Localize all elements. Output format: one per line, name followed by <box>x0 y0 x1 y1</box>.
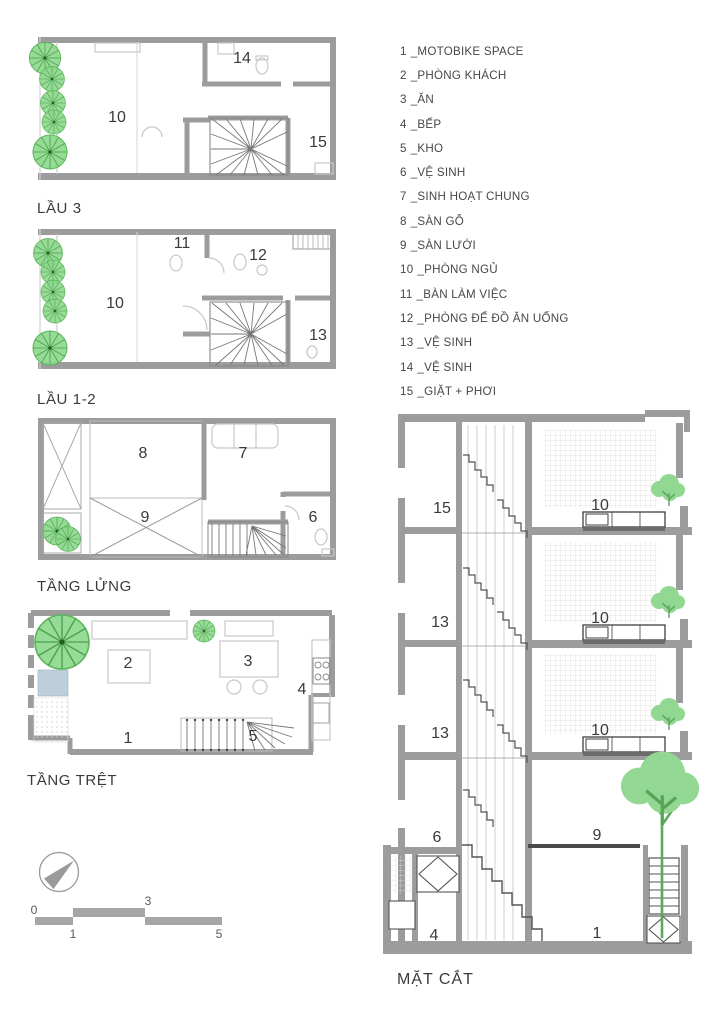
legend-separator: _ <box>417 385 424 398</box>
legend-item-number: 8 <box>400 215 407 228</box>
legend-separator: _ <box>417 361 424 374</box>
scale-bar: 0 1 3 5 <box>31 894 223 941</box>
legend-item-label: VỆ SINH <box>417 166 465 179</box>
legend-separator: _ <box>411 239 418 252</box>
ladder <box>649 858 679 914</box>
legend-item-label: KHO <box>417 142 443 155</box>
legend-item-label: VỆ SINH <box>424 336 472 349</box>
legend-item-label: BẾP <box>417 118 441 131</box>
legend-item: 12_PHÒNG ĐỂ ĐỒ ĂN UỐNG <box>400 306 569 330</box>
room-label: 11 <box>174 235 191 252</box>
legend-item: 7_SINH HOẠT CHUNG <box>400 185 569 209</box>
legend-item-label: SÀN LƯỚI <box>417 239 476 252</box>
plan-title-lau12: LẦU 1-2 <box>37 391 96 408</box>
legend-separator: _ <box>411 215 418 228</box>
legend-item-number: 9 <box>400 239 407 252</box>
tree-icon <box>42 110 66 134</box>
room-label: 4 <box>298 681 307 698</box>
room-label: 8 <box>139 445 148 462</box>
stairs <box>210 118 288 175</box>
legend-item-label: GIẶT + PHƠI <box>424 385 496 398</box>
room-label: 6 <box>433 829 442 846</box>
room-label: 10 <box>591 722 609 739</box>
legend-separator: _ <box>417 312 424 325</box>
legend-separator: _ <box>411 166 418 179</box>
legend-item: 6_VỆ SINH <box>400 160 569 184</box>
legend-item: 10_PHÒNG NGỦ <box>400 258 569 282</box>
scale-tick: 3 <box>145 894 152 908</box>
room-label: 10 <box>591 497 609 514</box>
wardrobe <box>293 233 333 249</box>
floor-plan-lau12: 10 11 12 13 <box>33 229 336 369</box>
room-legend: 1_MOTOBIKE SPACE 2_PHÒNG KHÁCH 3_ĂN 4_BẾ… <box>400 39 569 403</box>
legend-item-label: PHÒNG NGỦ <box>424 263 498 276</box>
room-label: 9 <box>141 509 150 526</box>
architectural-drawing-sheet: 10 14 15 <box>0 0 724 1024</box>
legend-item-number: 5 <box>400 142 407 155</box>
legend-separator: _ <box>411 45 418 58</box>
furniture <box>95 43 333 174</box>
legend-item-label: PHÒNG KHÁCH <box>417 69 506 82</box>
legend-item: 9_SÀN LƯỚI <box>400 233 569 257</box>
legend-item: 13_VỆ SINH <box>400 331 569 355</box>
room-label: 5 <box>249 728 258 745</box>
floor-plan-lau3: 10 14 15 <box>29 37 336 180</box>
plan-title-tang-tret: TẦNG TRỆT <box>27 772 117 789</box>
legend-item: 14_VỆ SINH <box>400 355 569 379</box>
legend-separator: _ <box>411 118 418 131</box>
trees <box>43 517 80 551</box>
room-label: 4 <box>430 927 439 944</box>
mesh-texture <box>391 430 657 894</box>
legend-item-number: 1 <box>400 45 407 58</box>
floor-plan-tang-lung: 8 9 7 6 <box>41 421 336 557</box>
legend-item-number: 12 <box>400 312 413 325</box>
legend-item: 8_SÀN GỖ <box>400 209 569 233</box>
scale-tick: 5 <box>216 927 223 941</box>
room-label: 12 <box>249 247 267 264</box>
drawing-canvas: 10 14 15 <box>0 0 724 1024</box>
legend-item-label: ĂN <box>417 93 434 106</box>
room-label: 1 <box>593 925 602 942</box>
legend-item: 11_BÀN LÀM VIỆC <box>400 282 569 306</box>
floor-plan-tang-tret: 2 3 4 1 5 <box>27 609 332 754</box>
legend-item: 5_KHO <box>400 136 569 160</box>
section-title: MẶT CẮT <box>397 971 474 989</box>
room-label: 2 <box>124 655 133 672</box>
scale-tick: 1 <box>70 927 77 941</box>
trees <box>29 42 67 169</box>
legend-item-number: 10 <box>400 263 413 276</box>
legend-item-number: 11 <box>400 288 413 301</box>
legend-item-label: MOTOBIKE SPACE <box>417 45 523 58</box>
room-label: 13 <box>309 327 327 344</box>
stairs <box>210 302 288 366</box>
legend-separator: _ <box>417 288 424 301</box>
legend-item-label: SÀN GỖ <box>417 215 464 228</box>
legend-separator: _ <box>411 69 418 82</box>
legend-item-number: 3 <box>400 93 407 106</box>
north-arrow-icon <box>40 853 79 892</box>
legend-item-label: VỆ SINH <box>424 361 472 374</box>
furniture <box>212 424 334 556</box>
legend-item-number: 4 <box>400 118 407 131</box>
room-label: 9 <box>593 827 602 844</box>
legend-item-number: 2 <box>400 69 407 82</box>
legend-item-number: 15 <box>400 385 413 398</box>
legend-item: 4_BẾP <box>400 112 569 136</box>
room-label: 13 <box>431 725 449 742</box>
legend-separator: _ <box>411 142 418 155</box>
scale-tick: 0 <box>31 903 38 917</box>
room-label: 6 <box>309 509 318 526</box>
legend-separator: _ <box>417 336 424 349</box>
legend-item-number: 14 <box>400 361 413 374</box>
tree-icon <box>35 615 89 669</box>
tree-icon <box>40 67 65 92</box>
legend-item: 1_MOTOBIKE SPACE <box>400 39 569 63</box>
water-feature <box>38 670 68 696</box>
legend-item: 15_GIẶT + PHƠI <box>400 379 569 403</box>
tree-icon <box>33 331 67 365</box>
tree-icon <box>193 620 215 642</box>
gravel-area <box>34 698 68 742</box>
room-label: 10 <box>106 295 124 312</box>
net-floor <box>90 498 202 557</box>
legend-item-label: BÀN LÀM VIỆC <box>423 288 507 301</box>
legend-item-number: 7 <box>400 190 407 203</box>
room-label: 14 <box>233 50 251 67</box>
legend-item-label: PHÒNG ĐỂ ĐỒ ĂN UỐNG <box>424 312 569 325</box>
stairs <box>181 718 294 751</box>
tree-icon <box>33 135 67 169</box>
room-label: 15 <box>309 134 327 151</box>
legend-item-number: 13 <box>400 336 413 349</box>
room-label: 7 <box>239 445 248 462</box>
plan-title-tang-lung: TẦNG LỬNG <box>37 578 132 595</box>
net-floor-line <box>528 844 640 848</box>
room-label: 3 <box>244 653 253 670</box>
room-label: 15 <box>433 500 451 517</box>
tree-icon <box>43 299 67 323</box>
legend-item-label: SINH HOẠT CHUNG <box>417 190 529 203</box>
section-drawing: 15 10 13 10 13 10 6 9 4 1 <box>383 410 699 954</box>
room-label: 13 <box>431 614 449 631</box>
legend-separator: _ <box>411 190 418 203</box>
kitchen-stove <box>313 658 330 723</box>
legend-item: 2_PHÒNG KHÁCH <box>400 63 569 87</box>
room-label: 10 <box>108 109 126 126</box>
trees <box>33 239 67 365</box>
tree-icon <box>56 527 81 552</box>
legend-separator: _ <box>411 93 418 106</box>
room-label: 10 <box>591 610 609 627</box>
stairs <box>208 522 288 557</box>
legend-item: 3_ĂN <box>400 88 569 112</box>
legend-item-number: 6 <box>400 166 407 179</box>
plan-title-lau3: LẦU 3 <box>37 200 82 217</box>
furniture <box>170 254 317 358</box>
legend-separator: _ <box>417 263 424 276</box>
room-label: 1 <box>124 730 133 747</box>
